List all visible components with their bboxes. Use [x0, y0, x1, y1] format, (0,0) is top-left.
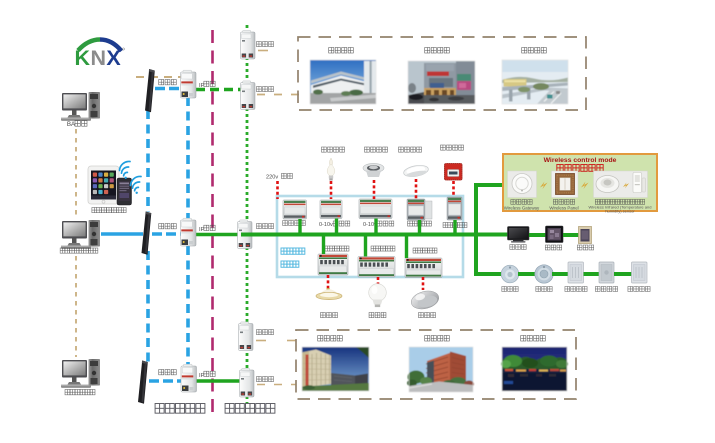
svg-text:Wireless control mode: Wireless control mode — [544, 157, 617, 164]
svg-text:humidity) sensor: humidity) sensor — [605, 209, 635, 214]
svg-text:0-10v: 0-10v — [319, 222, 333, 228]
svg-text:220v: 220v — [266, 175, 278, 181]
svg-text:BA: BA — [67, 121, 76, 128]
svg-text:Wireless Panel: Wireless Panel — [549, 206, 578, 211]
svg-text:KNX: KNX — [75, 46, 122, 70]
svg-text:Wireless Gateway: Wireless Gateway — [504, 206, 540, 211]
